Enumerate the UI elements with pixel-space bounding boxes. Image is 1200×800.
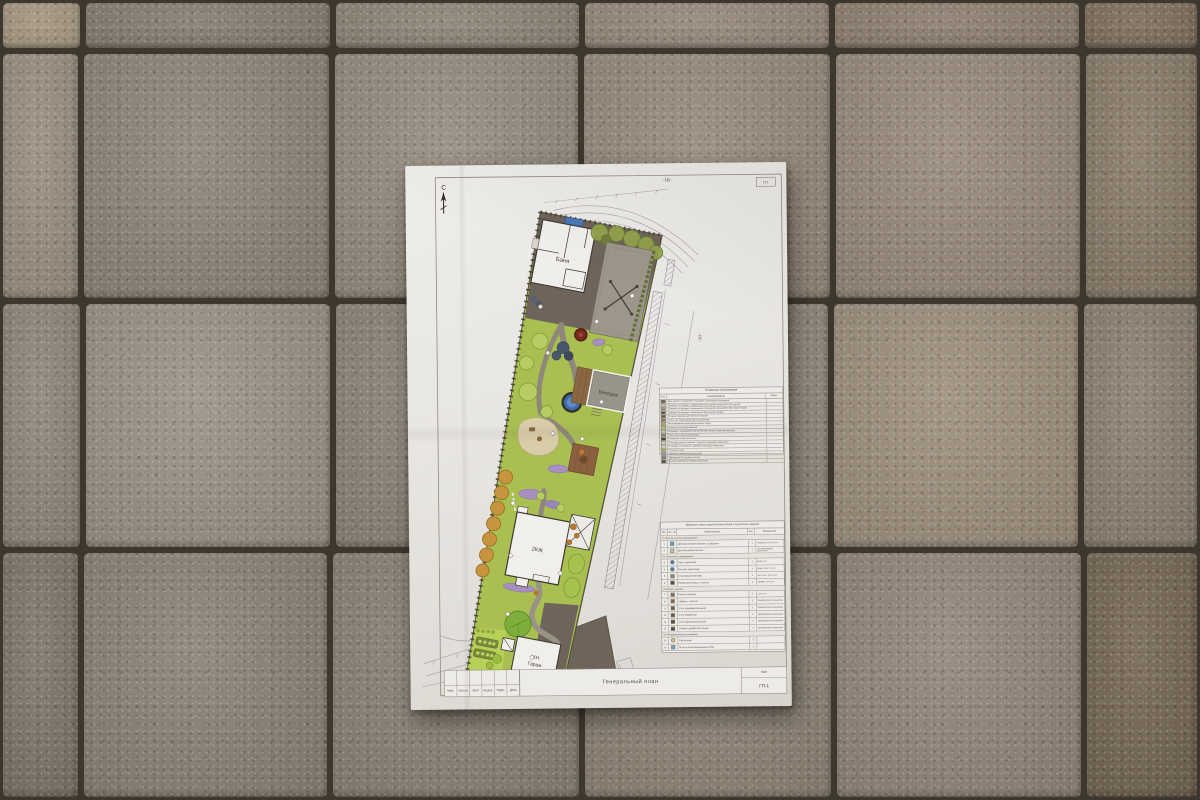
legend-swatch	[661, 415, 665, 417]
maf-cell: 1	[749, 565, 757, 571]
maf-cell: Приобретается заказчиком	[757, 611, 785, 618]
maf-cell	[668, 573, 678, 579]
title-block-cell-empty	[444, 671, 456, 686]
legend-swatch	[661, 412, 665, 414]
maf-cell: 1	[749, 558, 757, 564]
maf-square-icon	[671, 600, 674, 603]
legend-swatch	[662, 445, 666, 447]
maf-cell: Скамья садовая без спинки	[678, 625, 750, 632]
maf-cell: Габарит 3,5×2,2 м	[757, 579, 785, 586]
legend-swatch	[662, 438, 666, 440]
legend-swatch	[662, 442, 666, 444]
legend-swatch	[662, 449, 666, 451]
maf-square-icon	[671, 607, 674, 610]
title-block-cell: Лист	[469, 670, 482, 696]
maf-cell: 5	[750, 636, 758, 642]
maf-col-symbol: Усл. об.	[667, 529, 677, 535]
maf-cell: Мобильная качель с тентом	[678, 579, 750, 586]
maf-cell: Диам. 3,6 м, h 1,2 м	[756, 565, 784, 572]
legend-swatch	[661, 434, 665, 436]
title-block-cell-label: Кол.уч	[457, 685, 469, 696]
legend-table: Условные обозначения Усл. об. Наименован…	[660, 387, 784, 454]
maf-cell: 1	[749, 547, 757, 553]
paver-tile	[836, 54, 1080, 298]
maf-cell: 3	[750, 643, 758, 649]
legend-swatch	[661, 404, 665, 406]
paver-tile	[837, 553, 1081, 797]
legend-swatch	[661, 408, 665, 410]
legend-swatch	[662, 460, 666, 462]
legend-swatch	[661, 427, 665, 429]
maf-cell: 1	[749, 618, 757, 624]
maf-square-icon	[671, 542, 674, 545]
site-plan-sheet: ГП С –Щ–	[405, 162, 792, 710]
paver-tile	[585, 3, 829, 48]
paver-tile	[336, 3, 579, 48]
maf-cell: 2	[749, 625, 757, 631]
paver-tile	[1087, 553, 1197, 797]
sheet-value: ГП-1	[742, 678, 787, 694]
paver-tile	[3, 54, 78, 298]
maf-circle-icon	[672, 639, 675, 642]
maf-cell: Розетка влагозащищённая IP-65	[678, 643, 750, 650]
paver-tile	[835, 3, 1079, 48]
maf-cell	[757, 643, 785, 650]
maf-cell	[668, 619, 678, 625]
maf-cell	[668, 541, 678, 547]
maf-cell: 1	[749, 579, 757, 585]
maf-cell: 1	[749, 597, 757, 603]
north-arrow-icon: С	[440, 185, 446, 214]
legend-swatch	[661, 430, 665, 432]
maf-cell: 1	[749, 540, 757, 546]
title-block-cell-empty	[482, 670, 494, 685]
maf-cell: Приобретается заказчиком	[757, 618, 785, 625]
maf-cell	[668, 598, 678, 604]
maf-cell	[669, 644, 679, 650]
title-block-cell: Изм.	[444, 670, 457, 696]
maf-cell	[668, 566, 678, 572]
legend-body: Дом жилой и сооружения, площадки с разме…	[660, 399, 784, 464]
maf-cell	[757, 636, 785, 643]
corner-stamp: ГП	[756, 177, 775, 186]
title-block-cell-label: Дата	[507, 685, 519, 696]
maf-cell	[668, 580, 678, 586]
paver-tile	[3, 3, 80, 48]
maf-square-icon	[671, 593, 674, 596]
paver-tile	[3, 553, 78, 797]
maf-cell	[668, 547, 678, 553]
paver-tile	[1084, 304, 1197, 547]
paver-tile	[834, 304, 1078, 547]
title-block-cell: Кол.уч	[457, 670, 470, 696]
maf-cell: 1	[749, 611, 757, 617]
paver-tile	[86, 304, 330, 547]
maf-square-icon	[672, 627, 675, 630]
maf-cell: 2,0×1,2 м	[757, 590, 785, 597]
title-block: Изм.Кол.учЛист№ док.Подп.Дата Генеральны…	[444, 667, 786, 697]
paver-tile	[1085, 3, 1197, 48]
maf-square-icon	[672, 646, 675, 649]
maf-cell	[668, 625, 678, 631]
maf-circle-icon	[671, 568, 674, 571]
maf-cell: Тип «луч», 3,5×2,3 м	[756, 572, 784, 579]
sheet-number-block: Лист ГП-1	[741, 667, 787, 693]
dim-label-top: –Щ–	[662, 177, 673, 183]
title-block-cell-label: Лист	[470, 685, 482, 696]
maf-cell: Приобретается заказчиком	[757, 624, 785, 631]
title-block-cell-label: Подп.	[495, 685, 507, 696]
maf-square-icon	[671, 549, 674, 552]
title-block-cell-label: № док.	[482, 685, 494, 696]
paver-tile	[86, 3, 330, 48]
maf-cell: Габарит 4,2×3,4×3,2 м	[756, 540, 784, 547]
title-block-cell: Дата	[507, 670, 520, 696]
maf-cell: Устанавливается заказчиком	[756, 546, 784, 553]
maf-col-note: Примечание	[755, 528, 784, 534]
title-block-cell: Подп.	[494, 670, 507, 696]
dim-label-right: –Щ–	[697, 332, 704, 343]
maf-cell: 1	[749, 572, 757, 578]
maf-square-icon	[671, 614, 674, 617]
paver-tile	[84, 553, 327, 797]
title-block-cell-label: Изм.	[445, 685, 457, 696]
legend-name: Благоустройство по границе разработки	[667, 459, 767, 463]
title-block-cell-empty	[507, 670, 519, 685]
legend-col-symbol: Усл. об.	[660, 394, 668, 399]
title-block-cell-empty	[494, 670, 506, 685]
paver-tile	[3, 304, 80, 547]
sheet-label: Лист	[741, 667, 786, 678]
maf-square-icon	[671, 620, 674, 623]
svg-text:ГП: ГП	[763, 180, 768, 185]
maf-cell: Приобретается заказчиком	[757, 604, 785, 611]
sheet-title: Генеральный план	[520, 668, 741, 696]
maf-cell	[669, 637, 679, 643]
legend-swatch	[661, 400, 665, 402]
maf-cell	[668, 559, 678, 565]
maf-table: Ведомость малых архитектурных форм и пер…	[661, 521, 785, 652]
maf-cell	[668, 591, 678, 597]
maf-cell: Приобретается заказчиком	[757, 597, 785, 604]
legend-col-note: Прим.	[766, 393, 783, 398]
title-block-cell-empty	[457, 670, 469, 685]
maf-cell: 1	[749, 604, 757, 610]
maf-circle-icon	[671, 561, 674, 564]
maf-cell: 1	[749, 591, 757, 597]
title-block-cell-empty	[469, 670, 481, 685]
maf-square-icon	[671, 575, 674, 578]
maf-cell: Диам. 3 м	[756, 558, 784, 565]
title-block-cell: № док.	[482, 670, 495, 696]
legend-swatch	[662, 453, 666, 455]
legend-swatch	[661, 423, 665, 425]
legend-swatch	[662, 457, 666, 459]
maf-body: 01 Детское игровое оборудование1Детский …	[661, 535, 785, 651]
maf-row: 14Розетка влагозащищённая IP-653	[662, 643, 785, 651]
maf-cell	[668, 612, 678, 618]
paver-tile	[1086, 54, 1197, 298]
paver-tile	[84, 54, 329, 298]
maf-cell	[668, 605, 678, 611]
maf-col-qty: Кол.	[747, 528, 755, 534]
svg-text:С: С	[441, 185, 446, 192]
legend-swatch	[661, 419, 665, 421]
title-block-cells: Изм.Кол.учЛист№ док.Подп.Дата	[444, 670, 520, 697]
maf-cell: Детский домик-палатка	[677, 547, 749, 554]
maf-square-icon	[671, 581, 674, 584]
maf-col-name: Наименование	[677, 528, 748, 535]
